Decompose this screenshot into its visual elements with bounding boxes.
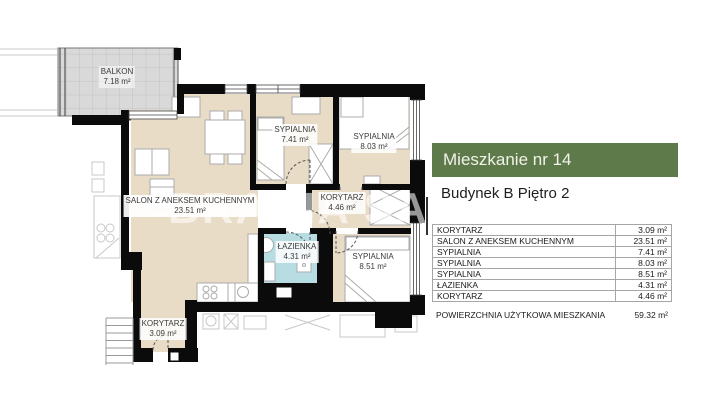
room-name-cell: SYPIALNIA bbox=[433, 247, 616, 258]
table-row: SYPIALNIA 8.51 m² bbox=[433, 269, 672, 280]
room-area-cell: 4.31 m² bbox=[616, 280, 672, 291]
table-row: SALON Z ANEKSEM KUCHENNYM 23.51 m² bbox=[433, 236, 672, 247]
room-label-korytarz-309: KORYTARZ 3.09 m² bbox=[140, 318, 187, 340]
room-area-cell: 3.09 m² bbox=[616, 225, 672, 236]
entrance-step bbox=[170, 352, 179, 361]
table-row: KORYTARZ 3.09 m² bbox=[433, 225, 672, 236]
room-area-cell: 7.41 m² bbox=[616, 247, 672, 258]
floor-plan: BRACIA SADURSCY BALKON 7.18 m² SYPIALNIA… bbox=[0, 0, 442, 414]
room-name-cell: SYPIALNIA bbox=[433, 269, 616, 280]
apartment-title: Mieszkanie nr 14 bbox=[443, 150, 572, 169]
room-name-cell: SALON Z ANEKSEM KUCHENNYM bbox=[433, 236, 616, 247]
room-label-korytarz-446: KORYTARZ 4.46 m² bbox=[319, 192, 366, 214]
room-area-table: KORYTARZ 3.09 m² SALON Z ANEKSEM KUCHENN… bbox=[432, 224, 672, 302]
room-name-cell: KORYTARZ bbox=[433, 291, 616, 302]
room-name-cell: SYPIALNIA bbox=[433, 258, 616, 269]
room-area-cell: 23.51 m² bbox=[616, 236, 672, 247]
room-label-sypialnia-741: SYPIALNIA 7.41 m² bbox=[272, 124, 317, 146]
shaft bbox=[276, 287, 292, 298]
room-label-sypialnia-803: SYPIALNIA 8.03 m² bbox=[351, 131, 396, 153]
total-area-value: 59.32 m² bbox=[634, 310, 668, 320]
room-name-cell: ŁAZIENKA bbox=[433, 280, 616, 291]
room-area-cell: 4.46 m² bbox=[616, 291, 672, 302]
room-label-sypialnia-851: SYPIALNIA 8.51 m² bbox=[350, 251, 395, 273]
table-row: KORYTARZ 4.46 m² bbox=[433, 291, 672, 302]
room-area-cell: 8.51 m² bbox=[616, 269, 672, 280]
room-label-salon: SALON Z ANEKSEM KUCHENNYM 23.51 m² bbox=[124, 195, 257, 217]
room-area-cell: 8.03 m² bbox=[616, 258, 672, 269]
building-floor-subtitle: Budynek B Piętro 2 bbox=[441, 185, 678, 202]
floor-plan-page: BRACIA SADURSCY BALKON 7.18 m² SYPIALNIA… bbox=[0, 0, 710, 414]
room-name-cell: KORYTARZ bbox=[433, 225, 616, 236]
table-row: ŁAZIENKA 4.31 m² bbox=[433, 280, 672, 291]
total-area-label: POWIERZCHNIA UŻYTKOWA MIESZKANIA bbox=[436, 310, 605, 320]
apartment-title-banner: Mieszkanie nr 14 bbox=[432, 143, 678, 177]
room-label-lazienka: ŁAZIENKA 4.31 m² bbox=[276, 241, 319, 263]
stairs bbox=[106, 318, 133, 365]
table-row: SYPIALNIA 7.41 m² bbox=[433, 247, 672, 258]
table-row: SYPIALNIA 8.03 m² bbox=[433, 258, 672, 269]
room-label-balkon: BALKON 7.18 m² bbox=[99, 66, 135, 88]
info-panel: Mieszkanie nr 14 Budynek B Piętro 2 KORY… bbox=[432, 143, 678, 202]
total-area-row: POWIERZCHNIA UŻYTKOWA MIESZKANIA 59.32 m… bbox=[432, 308, 672, 320]
